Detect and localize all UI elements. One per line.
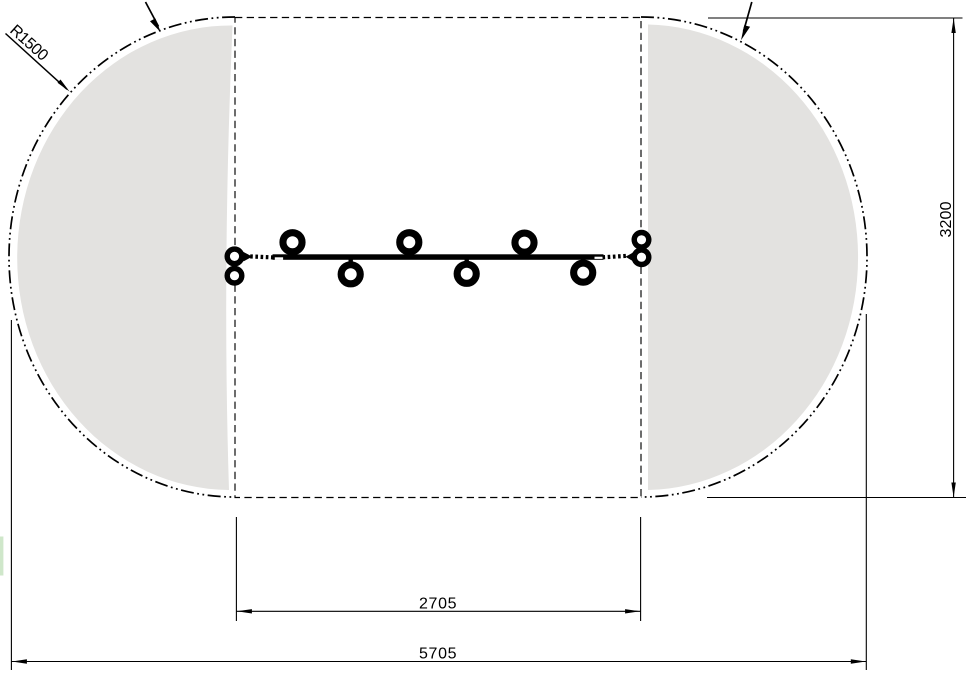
svg-text:3200: 3200: [938, 201, 955, 237]
svg-text:2705: 2705: [419, 595, 457, 612]
svg-text:R1500: R1500: [6, 22, 51, 65]
svg-text:5705: 5705: [419, 645, 457, 662]
